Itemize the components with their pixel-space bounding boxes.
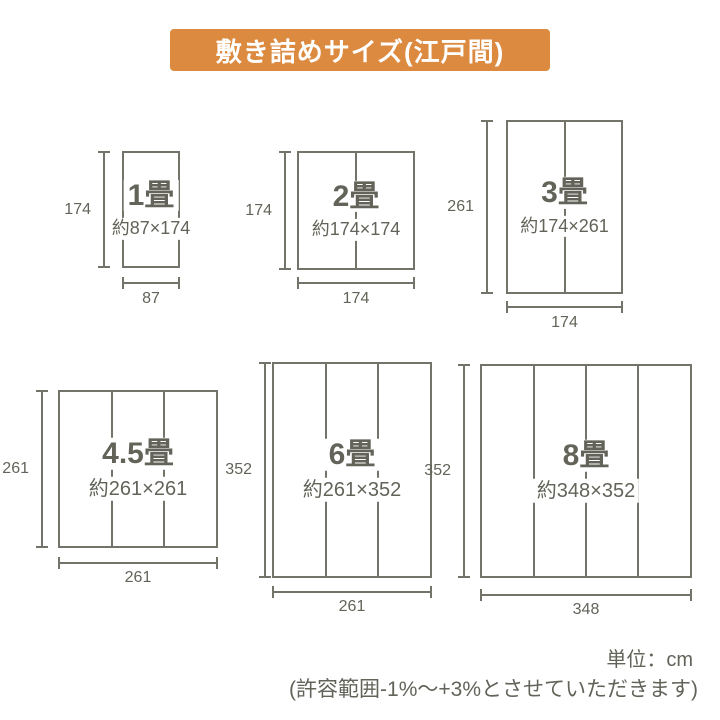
width-measure-line: [297, 277, 415, 289]
height-measure-label: 174: [238, 151, 275, 270]
width-measure-label: 348: [480, 601, 692, 619]
height-measure-line: [481, 120, 493, 294]
width-measure-label: 174: [297, 290, 415, 308]
mat-size-label: 約261×352: [299, 477, 405, 501]
mat-name-label: 2畳: [329, 180, 384, 212]
mat-size-label: 約174×174: [308, 219, 405, 241]
mat-outline: 8畳 約348×352: [480, 364, 692, 578]
height-measure-line: [36, 390, 48, 548]
width-measure-label: 174: [506, 314, 623, 332]
mat-outline: 3畳 約174×261: [506, 120, 623, 294]
width-measure-label: 87: [122, 290, 180, 308]
width-measure-label: 261: [58, 569, 218, 587]
mat-size-label: 約87×174: [108, 218, 195, 240]
height-measure-label: 352: [221, 362, 255, 578]
mat-size-label: 約348×352: [533, 478, 639, 502]
height-measure-line: [259, 362, 271, 578]
mat-outline: 2畳 約174×174: [297, 151, 415, 270]
height-measure-line: [458, 364, 470, 578]
unit-note: 単位：cm: [289, 646, 693, 675]
height-measure-label: 174: [56, 151, 94, 268]
mat-outline: 4.5畳 約261×261: [58, 390, 218, 548]
height-measure-label: 261: [1, 390, 32, 548]
height-measure-label: 352: [420, 364, 454, 578]
page-title: 敷き詰めサイズ(江戸間): [216, 32, 505, 69]
height-measure-label: 261: [440, 120, 477, 294]
width-measure-line: [272, 586, 432, 598]
mat-labels: 6畳 約261×352: [299, 439, 405, 502]
width-measure-label: 261: [272, 598, 432, 616]
tolerance-note: (許容範囲-1%～+3%とさせていただきます): [289, 675, 698, 705]
width-measure-line: [122, 277, 180, 289]
mat-name-label: 4.5畳: [98, 438, 178, 470]
mat-labels: 4.5畳 約261×261: [85, 438, 191, 501]
mat-size-label: 約174×261: [516, 215, 613, 237]
mat-labels: 1畳 約87×174: [108, 179, 195, 239]
footer-notes: 単位：cm (許容範囲-1%～+3%とさせていただきます): [289, 646, 698, 705]
mat-labels: 3畳 約174×261: [516, 177, 613, 237]
mat-labels: 8畳 約348×352: [533, 440, 639, 503]
mat-outline: 1畳 約87×174: [122, 151, 180, 268]
mat-name-label: 6畳: [325, 439, 380, 471]
width-measure-line: [506, 301, 623, 313]
height-measure-line: [279, 151, 291, 270]
title-banner: 敷き詰めサイズ(江戸間): [170, 29, 550, 71]
tatami-size-diagram: 敷き詰めサイズ(江戸間) 1畳 約87×174 174 87 2畳 約174×1…: [0, 0, 720, 720]
mat-size-label: 約261×261: [85, 476, 191, 500]
width-measure-line: [58, 557, 218, 569]
mat-name-label: 8畳: [559, 440, 614, 472]
mat-name-label: 3畳: [537, 177, 592, 209]
width-measure-line: [480, 589, 692, 601]
mat-labels: 2畳 約174×174: [308, 180, 405, 240]
mat-name-label: 1畳: [124, 179, 179, 211]
mat-outline: 6畳 約261×352: [272, 362, 432, 578]
